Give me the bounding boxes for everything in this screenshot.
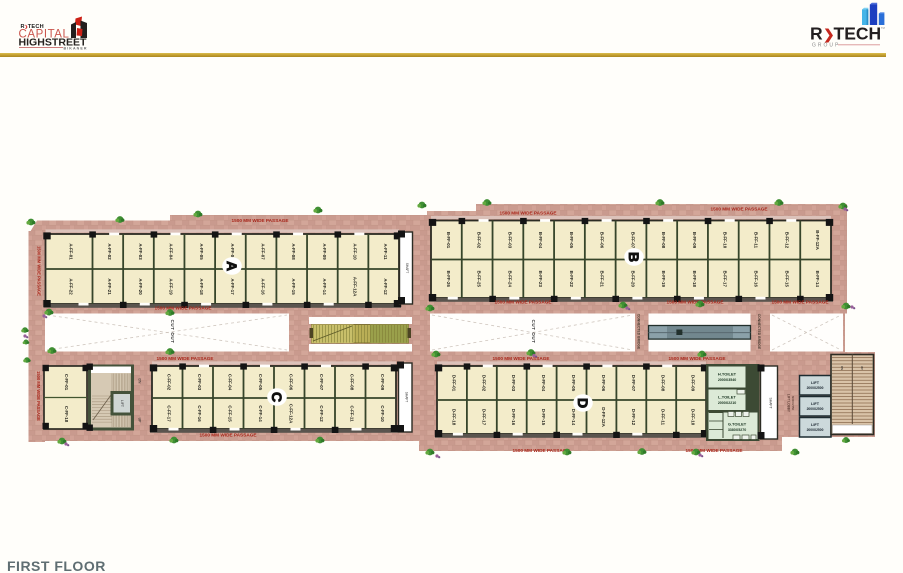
svg-text:A-FF-08: A-FF-08	[291, 243, 296, 260]
svg-text:2000X2210: 2000X2210	[718, 401, 736, 405]
svg-text:A-FF-15: A-FF-15	[291, 278, 296, 295]
svg-text:2000X2500: 2000X2500	[807, 386, 824, 390]
svg-text:C-FF-08: C-FF-08	[350, 374, 355, 391]
svg-text:BIKANER: BIKANER	[64, 46, 88, 50]
svg-text:SHAFT: SHAFT	[405, 263, 409, 274]
svg-text:CONNECTED BRIDGE: CONNECTED BRIDGE	[637, 314, 641, 350]
svg-text:B-FF-08: B-FF-08	[661, 232, 666, 249]
svg-text:C-FF-15: C-FF-15	[228, 405, 233, 422]
svg-text:A-FF-01: A-FF-01	[68, 243, 73, 260]
svg-text:D-FF-14: D-FF-14	[571, 409, 576, 426]
svg-text:1500 MM WIDE PASSAGE: 1500 MM WIDE PASSAGE	[157, 356, 214, 361]
svg-text:1500 MM WIDE PASSAGE: 1500 MM WIDE PASSAGE	[155, 306, 212, 311]
svg-text:A-FF-05: A-FF-05	[199, 243, 204, 260]
svg-text:2000X3540: 2000X3540	[718, 378, 736, 382]
svg-text:C-FF-02: C-FF-02	[167, 374, 172, 391]
svg-text:A: A	[224, 261, 240, 271]
svg-text:A-FF-03: A-FF-03	[138, 243, 143, 260]
svg-text:6000X2750: 6000X2750	[791, 396, 795, 411]
svg-text:R: R	[810, 24, 823, 44]
svg-text:A-FF-14: A-FF-14	[322, 278, 327, 295]
svg-text:G.TOILET: G.TOILET	[728, 422, 747, 427]
svg-text:C-FF-07: C-FF-07	[319, 374, 324, 391]
svg-text:D: D	[575, 398, 591, 408]
svg-text:B-FF-16: B-FF-16	[753, 271, 758, 288]
svg-text:D-FF-16: D-FF-16	[511, 409, 516, 426]
svg-text:2000X2500: 2000X2500	[807, 428, 824, 432]
svg-text:1500 MM WIDE PASSAGE: 1500 MM WIDE PASSAGE	[500, 211, 557, 216]
svg-text:C-FF-01: C-FF-01	[64, 374, 69, 391]
svg-text:1500 MM WIDE PASSAGE: 1500 MM WIDE PASSAGE	[232, 218, 289, 223]
svg-text:1500 MM WIDE PASSAGE: 1500 MM WIDE PASSAGE	[711, 207, 768, 212]
svg-text:DN: DN	[138, 379, 142, 384]
svg-text:A-FF-09: A-FF-09	[322, 243, 327, 260]
svg-text:D-FF-02: D-FF-02	[481, 375, 486, 392]
svg-text:1500 MM WIDE PASSAGE: 1500 MM WIDE PASSAGE	[493, 356, 550, 361]
svg-text:B-FF-12A: B-FF-12A	[815, 230, 820, 250]
svg-text:A-FF-04: A-FF-04	[169, 243, 174, 260]
svg-text:D-FF-08: D-FF-08	[661, 375, 666, 392]
svg-text:B-FF-23: B-FF-23	[538, 271, 543, 288]
svg-text:C: C	[269, 392, 285, 402]
svg-text:D-FF-03: D-FF-03	[511, 375, 516, 392]
svg-text:A-FF-16: A-FF-16	[260, 278, 265, 295]
svg-text:D-FF-18: D-FF-18	[451, 409, 456, 426]
svg-text:D-FF-01: D-FF-01	[451, 375, 456, 392]
svg-text:A-FF-21: A-FF-21	[107, 278, 112, 295]
svg-text:3380X5270: 3380X5270	[728, 428, 746, 432]
svg-text:D-FF-12: D-FF-12	[631, 409, 636, 426]
svg-text:B-FF-05: B-FF-05	[569, 232, 574, 249]
svg-text:B-FF-19: B-FF-19	[661, 271, 666, 288]
svg-text:1500 MM WIDE PASSAGE: 1500 MM WIDE PASSAGE	[667, 300, 724, 305]
svg-text:1500 MM WIDE PASSAGE: 1500 MM WIDE PASSAGE	[495, 300, 552, 305]
svg-text:B-FF-03: B-FF-03	[507, 232, 512, 249]
svg-text:A-FF-19: A-FF-19	[169, 278, 174, 295]
svg-text:1500 MM WIDE PASSAGE: 1500 MM WIDE PASSAGE	[513, 448, 570, 453]
svg-text:B-FF-02: B-FF-02	[477, 232, 482, 249]
svg-text:C-FF-14: C-FF-14	[258, 405, 263, 422]
svg-text:D-FF-12A: D-FF-12A	[601, 407, 606, 427]
svg-text:LIFT LOBBY: LIFT LOBBY	[787, 394, 791, 413]
svg-text:B-FF-17: B-FF-17	[723, 271, 728, 288]
svg-text:CUT OUT: CUT OUT	[170, 320, 175, 344]
svg-text:B-FF-07: B-FF-07	[630, 232, 635, 249]
svg-text:C-FF-05: C-FF-05	[258, 374, 263, 391]
svg-text:B-FF-21: B-FF-21	[600, 271, 605, 288]
svg-text:A-FF-11: A-FF-11	[383, 243, 388, 260]
svg-text:1500 MM WIDE PASSAGE: 1500 MM WIDE PASSAGE	[36, 371, 41, 421]
svg-text:UP: UP	[138, 418, 142, 423]
svg-text:C-FF-04: C-FF-04	[228, 374, 233, 391]
svg-text:D-FF-11: D-FF-11	[661, 409, 666, 426]
svg-text:B-FF-06: B-FF-06	[600, 232, 605, 249]
svg-text:A-FF-18: A-FF-18	[199, 278, 204, 295]
svg-text:B: B	[626, 252, 642, 262]
svg-text:D-FF-04: D-FF-04	[541, 375, 546, 392]
svg-text:C-FF-12: C-FF-12	[319, 405, 324, 422]
svg-text:1500 MM WIDE PASSAGE: 1500 MM WIDE PASSAGE	[772, 300, 829, 305]
svg-text:UP: UP	[860, 366, 864, 370]
svg-text:LIFT: LIFT	[811, 402, 820, 406]
svg-text:B-FF-24: B-FF-24	[507, 271, 512, 288]
svg-text:L.TOILET: L.TOILET	[718, 395, 736, 400]
svg-text:B-FF-22: B-FF-22	[569, 271, 574, 288]
svg-text:C-FF-09: C-FF-09	[380, 374, 385, 391]
svg-text:B-FF-18: B-FF-18	[692, 271, 697, 288]
svg-text:H.TOILET: H.TOILET	[718, 372, 737, 377]
svg-text:B-FF-10: B-FF-10	[723, 232, 728, 249]
svg-text:C-FF-12A: C-FF-12A	[289, 404, 294, 424]
svg-text:A-FF-17: A-FF-17	[230, 278, 235, 295]
svg-text:A-FF-20: A-FF-20	[138, 278, 143, 295]
svg-text:A-FF-02: A-FF-02	[107, 243, 112, 260]
svg-text:GROUP: GROUP	[812, 43, 840, 49]
svg-text:C-FF-16: C-FF-16	[197, 405, 202, 422]
svg-text:B-FF-25: B-FF-25	[477, 271, 482, 288]
svg-text:B-FF-15: B-FF-15	[784, 271, 789, 288]
svg-text:A-FF-12A: A-FF-12A	[352, 277, 357, 297]
svg-text:LIFT: LIFT	[811, 423, 820, 427]
svg-text:B-FF-09: B-FF-09	[692, 232, 697, 249]
svg-text:C-FF-11: C-FF-11	[350, 405, 355, 422]
svg-text:D-FF-10: D-FF-10	[691, 409, 696, 426]
svg-text:D-FF-06: D-FF-06	[601, 375, 606, 392]
svg-text:LIFT: LIFT	[120, 400, 124, 407]
svg-text:1500 MM WIDE PASSAGE: 1500 MM WIDE PASSAGE	[37, 246, 42, 296]
svg-text:A-FF-12: A-FF-12	[383, 278, 388, 295]
svg-text:B-FF-14: B-FF-14	[815, 271, 820, 288]
svg-text:D-FF-05: D-FF-05	[571, 375, 576, 392]
svg-text:D-FF-09: D-FF-09	[691, 375, 696, 392]
svg-text:1500 MM WIDE PASSAGE: 1500 MM WIDE PASSAGE	[669, 356, 726, 361]
svg-text:1500 MM WIDE PASSAGE: 1500 MM WIDE PASSAGE	[200, 433, 257, 438]
svg-text:C-FF-18: C-FF-18	[64, 406, 69, 423]
svg-text:SHAFT: SHAFT	[405, 392, 409, 403]
svg-text:B-FF-11: B-FF-11	[753, 232, 758, 249]
svg-text:A-FF-07: A-FF-07	[260, 243, 265, 260]
svg-text:B-FF-01: B-FF-01	[446, 232, 451, 249]
svg-text:SHAFT: SHAFT	[769, 397, 773, 408]
svg-text:2000X2500: 2000X2500	[807, 407, 824, 411]
svg-text:D-FF-07: D-FF-07	[631, 375, 636, 392]
svg-text:D-FF-15: D-FF-15	[541, 409, 546, 426]
svg-text:C-FF-06: C-FF-06	[289, 374, 294, 391]
svg-text:TM: TM	[881, 26, 885, 30]
svg-text:CUT OUT: CUT OUT	[531, 320, 536, 344]
svg-text:B-FF-26: B-FF-26	[446, 271, 451, 288]
svg-text:B-FF-04: B-FF-04	[538, 232, 543, 249]
svg-text:D-FF-17: D-FF-17	[481, 409, 486, 426]
svg-text:DN: DN	[840, 366, 844, 370]
svg-text:C-FF-17: C-FF-17	[167, 405, 172, 422]
svg-text:CONNECTED BRIDGE: CONNECTED BRIDGE	[757, 314, 761, 350]
svg-text:B-FF-20: B-FF-20	[630, 271, 635, 288]
svg-text:C-FF-03: C-FF-03	[197, 374, 202, 391]
svg-text:LIFT: LIFT	[811, 381, 820, 385]
svg-text:A-FF-22: A-FF-22	[68, 278, 73, 295]
svg-text:A-FF-10: A-FF-10	[352, 243, 357, 260]
svg-text:TECH: TECH	[834, 24, 882, 44]
svg-text:B-FF-12: B-FF-12	[784, 232, 789, 249]
svg-text:C-FF-10: C-FF-10	[380, 405, 385, 422]
